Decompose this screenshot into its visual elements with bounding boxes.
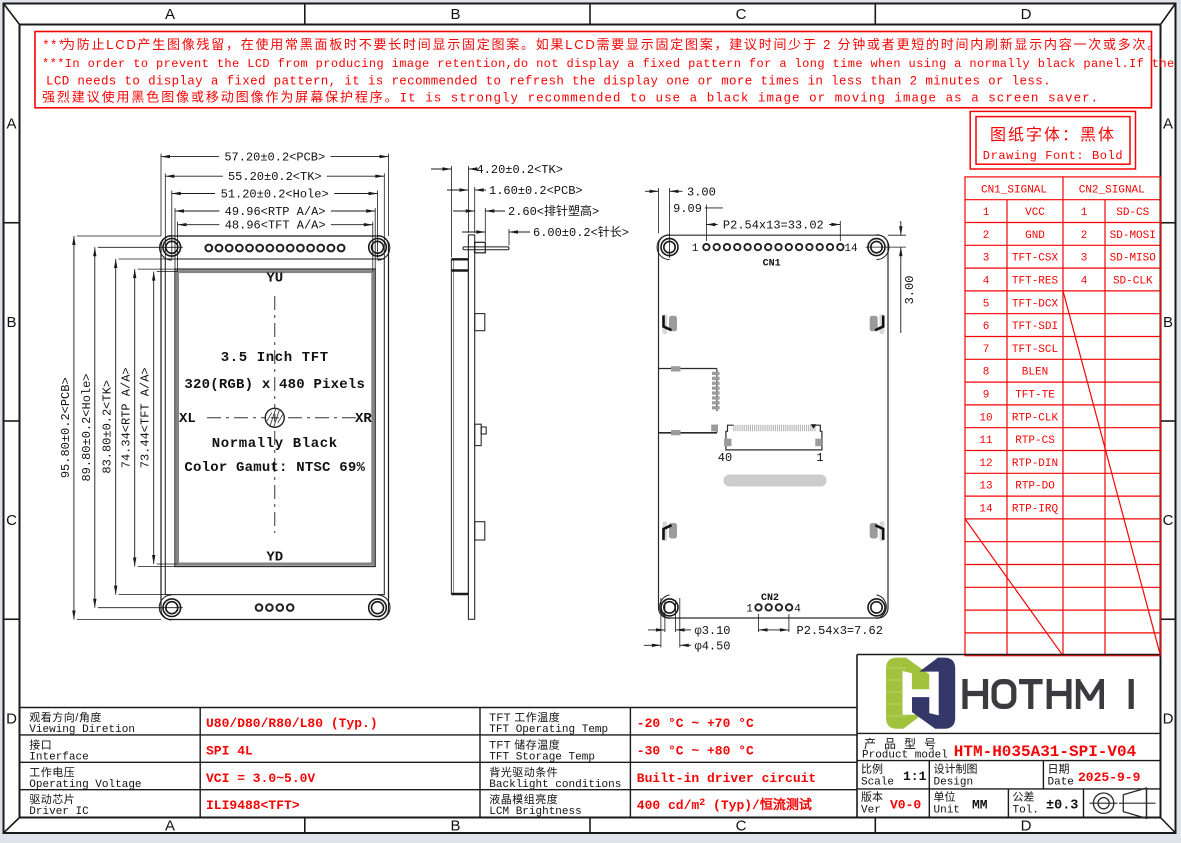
svg-text:Drawing Font: Bold: Drawing Font: Bold bbox=[983, 149, 1123, 163]
svg-text:3.5 Inch TFT: 3.5 Inch TFT bbox=[221, 350, 329, 366]
svg-text:TFT Operating Temp: TFT Operating Temp bbox=[489, 724, 608, 736]
svg-text:TFT-RES: TFT-RES bbox=[1012, 276, 1059, 288]
svg-text:B: B bbox=[450, 6, 460, 23]
svg-text:89.80±0.2<Hole>: 89.80±0.2<Hole> bbox=[80, 373, 94, 481]
svg-text:3: 3 bbox=[983, 253, 990, 265]
svg-text:A: A bbox=[165, 818, 175, 835]
svg-text:400 cd/m2 (Typ)/恒流测试: 400 cd/m2 (Typ)/恒流测试 bbox=[637, 797, 812, 813]
svg-text:Viewing Diretion: Viewing Diretion bbox=[29, 724, 135, 736]
svg-text:日期: 日期 bbox=[1048, 763, 1070, 776]
svg-text:MM: MM bbox=[972, 798, 988, 813]
svg-text:TFT-DCX: TFT-DCX bbox=[1012, 298, 1059, 310]
svg-text:3: 3 bbox=[1081, 253, 1088, 265]
svg-text:14: 14 bbox=[844, 243, 858, 255]
svg-text:B: B bbox=[1163, 314, 1173, 331]
svg-text:Normally Black: Normally Black bbox=[212, 436, 338, 452]
svg-text:73.44<TFT A/A>: 73.44<TFT A/A> bbox=[139, 367, 153, 468]
svg-text:比例: 比例 bbox=[861, 762, 883, 776]
svg-text:10: 10 bbox=[979, 412, 992, 424]
svg-text:11: 11 bbox=[979, 435, 993, 447]
svg-text:U80/D80/R80/L80 (Typ.): U80/D80/R80/L80 (Typ.) bbox=[206, 716, 378, 731]
svg-text:-30 °C ~ +80 °C: -30 °C ~ +80 °C bbox=[637, 743, 754, 758]
svg-text:A: A bbox=[165, 6, 175, 23]
svg-text:CN1_SIGNAL: CN1_SIGNAL bbox=[981, 184, 1047, 196]
svg-text:1: 1 bbox=[1081, 207, 1088, 219]
svg-text:Unit: Unit bbox=[934, 805, 960, 817]
svg-text:C: C bbox=[1163, 512, 1174, 529]
svg-text:TFT Storage Temp: TFT Storage Temp bbox=[489, 751, 595, 763]
svg-text:3.00: 3.00 bbox=[903, 276, 917, 305]
svg-text:2.60<排针塑高>: 2.60<排针塑高> bbox=[508, 203, 599, 219]
svg-text:Ver: Ver bbox=[861, 805, 881, 817]
svg-text:55.20±0.2<TK>: 55.20±0.2<TK> bbox=[228, 170, 322, 184]
svg-text:D: D bbox=[6, 710, 17, 727]
svg-text:RTP-CLK: RTP-CLK bbox=[1012, 412, 1059, 424]
svg-text:83.80±0.2<TK>: 83.80±0.2<TK> bbox=[101, 380, 115, 474]
svg-text:VCI = 3.0~5.0V: VCI = 3.0~5.0V bbox=[206, 771, 315, 786]
svg-text:LCM Brightness: LCM Brightness bbox=[489, 806, 581, 818]
svg-text:BLEN: BLEN bbox=[1022, 367, 1048, 379]
svg-text:5: 5 bbox=[983, 298, 990, 310]
svg-text:SPI 4L: SPI 4L bbox=[206, 743, 253, 758]
svg-text:设计制图: 设计制图 bbox=[934, 763, 978, 776]
svg-text:XR: XR bbox=[355, 411, 372, 427]
svg-text:C: C bbox=[736, 6, 747, 23]
svg-text:D: D bbox=[1163, 710, 1174, 727]
svg-text:CN2_SIGNAL: CN2_SIGNAL bbox=[1079, 184, 1145, 196]
svg-text:SD-MOSI: SD-MOSI bbox=[1110, 230, 1156, 242]
svg-text:2025-9-9: 2025-9-9 bbox=[1078, 770, 1141, 785]
svg-text:320(RGB) x 480 Pixels: 320(RGB) x 480 Pixels bbox=[184, 377, 365, 393]
svg-text:6.00±0.2<针长>: 6.00±0.2<针长> bbox=[533, 224, 629, 240]
svg-text:YU: YU bbox=[266, 271, 283, 287]
svg-text:1: 1 bbox=[983, 207, 990, 219]
svg-text:Design: Design bbox=[934, 777, 974, 789]
svg-text:3.00: 3.00 bbox=[687, 185, 716, 199]
svg-text:Driver IC: Driver IC bbox=[29, 806, 89, 818]
svg-text:LCD needs to display a fixed p: LCD needs to display a fixed pattern, it… bbox=[46, 75, 1051, 89]
svg-text:D: D bbox=[1021, 818, 1032, 835]
svg-text:***In order to prevent the LCD: ***In order to prevent the LCD from prod… bbox=[42, 57, 1175, 71]
svg-text:Backlight conditions: Backlight conditions bbox=[489, 779, 621, 791]
svg-text:4: 4 bbox=[1081, 276, 1088, 288]
svg-text:φ3.10: φ3.10 bbox=[695, 624, 731, 638]
svg-text:57.20±0.2<PCB>: 57.20±0.2<PCB> bbox=[224, 151, 325, 165]
svg-text:1: 1 bbox=[692, 243, 699, 255]
svg-text:Scale: Scale bbox=[861, 777, 894, 789]
svg-text:版本: 版本 bbox=[861, 790, 883, 804]
svg-text:B: B bbox=[450, 818, 460, 835]
svg-text:单位: 单位 bbox=[934, 790, 956, 804]
svg-text:接口: 接口 bbox=[29, 738, 52, 751]
svg-text:公差: 公差 bbox=[1013, 790, 1035, 804]
svg-text:Date: Date bbox=[1048, 777, 1074, 789]
svg-text:强烈建议使用黑色图像或移动图像作为屏幕保护程序。It is: 强烈建议使用黑色图像或移动图像作为屏幕保护程序。It is strongly r… bbox=[42, 90, 1099, 106]
svg-text:Built-in driver circuit: Built-in driver circuit bbox=[637, 771, 816, 786]
svg-text:XL: XL bbox=[179, 411, 196, 427]
svg-text:GND: GND bbox=[1025, 230, 1045, 242]
svg-text:1:1: 1:1 bbox=[903, 769, 927, 784]
svg-text:TFT 储存温度: TFT 储存温度 bbox=[489, 737, 560, 751]
svg-text:1: 1 bbox=[746, 603, 753, 615]
svg-text:±0.3: ±0.3 bbox=[1046, 799, 1078, 814]
svg-text:TFT-SDI: TFT-SDI bbox=[1012, 321, 1058, 333]
svg-text:RTP-IRQ: RTP-IRQ bbox=[1012, 504, 1059, 516]
svg-text:A: A bbox=[6, 116, 16, 133]
svg-text:4.20±0.2<TK>: 4.20±0.2<TK> bbox=[477, 163, 563, 177]
svg-text:CN1: CN1 bbox=[763, 259, 781, 270]
svg-text:C: C bbox=[736, 818, 747, 835]
svg-text:TFT-SCL: TFT-SCL bbox=[1012, 344, 1058, 356]
svg-text:51.20±0.2<Hole>: 51.20±0.2<Hole> bbox=[221, 188, 329, 202]
svg-text:Product model: Product model bbox=[862, 750, 948, 762]
svg-text:Interface: Interface bbox=[29, 751, 88, 763]
svg-text:ILI9488<TFT>: ILI9488<TFT> bbox=[206, 798, 300, 813]
svg-text:9.09: 9.09 bbox=[673, 202, 702, 216]
svg-text:V0-0: V0-0 bbox=[890, 798, 921, 813]
svg-text:2: 2 bbox=[1081, 230, 1088, 242]
svg-text:4: 4 bbox=[983, 276, 990, 288]
svg-text:Operating Voltage: Operating Voltage bbox=[29, 779, 141, 791]
svg-text:背光驱动条件: 背光驱动条件 bbox=[489, 765, 558, 779]
svg-text:SD-CLK: SD-CLK bbox=[1113, 276, 1153, 288]
svg-text:95.80±0.2<PCB>: 95.80±0.2<PCB> bbox=[59, 377, 73, 478]
svg-text:SD-MISO: SD-MISO bbox=[1110, 253, 1157, 265]
svg-text:工作电压: 工作电压 bbox=[29, 766, 75, 779]
svg-text:RTP-CS: RTP-CS bbox=[1015, 435, 1055, 447]
svg-text:TFT 工作温度: TFT 工作温度 bbox=[489, 710, 560, 724]
svg-text:CN2: CN2 bbox=[761, 593, 779, 604]
svg-text:为防止LCD产生图像残留，在使用常黑面板时不要长时间显示固定: 为防止LCD产生图像残留，在使用常黑面板时不要长时间显示固定图案。如果LCD需要… bbox=[62, 37, 1162, 52]
svg-text:Color Gamut: NTSC 69%: Color Gamut: NTSC 69% bbox=[184, 460, 365, 476]
svg-text:TFT-TE: TFT-TE bbox=[1015, 390, 1055, 402]
svg-text:B: B bbox=[6, 314, 16, 331]
svg-text:A: A bbox=[1163, 116, 1173, 133]
svg-text:13: 13 bbox=[979, 481, 992, 493]
svg-text:Tol.: Tol. bbox=[1013, 805, 1039, 817]
svg-text:VCC: VCC bbox=[1025, 207, 1045, 219]
svg-text:观看方向/角度: 观看方向/角度 bbox=[29, 710, 102, 724]
svg-text:9: 9 bbox=[983, 390, 990, 402]
svg-text:RTP-DO: RTP-DO bbox=[1015, 481, 1055, 493]
svg-text:49.96<RTP A/A>: 49.96<RTP A/A> bbox=[225, 205, 326, 219]
svg-text:40: 40 bbox=[718, 451, 732, 465]
svg-text:1.60±0.2<PCB>: 1.60±0.2<PCB> bbox=[489, 184, 583, 198]
svg-text:14: 14 bbox=[979, 504, 993, 516]
svg-text:YD: YD bbox=[266, 550, 283, 566]
svg-text:φ4.50: φ4.50 bbox=[695, 639, 731, 653]
svg-text:4: 4 bbox=[794, 603, 801, 615]
svg-text:液晶模组亮度: 液晶模组亮度 bbox=[489, 792, 558, 806]
svg-text:C: C bbox=[6, 512, 17, 529]
svg-text:12: 12 bbox=[979, 458, 992, 470]
svg-text:1: 1 bbox=[816, 451, 823, 465]
svg-text:-20 °C ~ +70 °C: -20 °C ~ +70 °C bbox=[637, 716, 754, 731]
svg-text:48.96<TFT A/A>: 48.96<TFT A/A> bbox=[225, 219, 326, 233]
svg-text:P2.54x13=33.02: P2.54x13=33.02 bbox=[723, 219, 824, 233]
svg-text:图纸字体：黑体: 图纸字体：黑体 bbox=[990, 126, 1116, 144]
svg-text:SD-CS: SD-CS bbox=[1116, 207, 1149, 219]
svg-text:6: 6 bbox=[983, 321, 990, 333]
svg-text:RTP-DIN: RTP-DIN bbox=[1012, 458, 1058, 470]
svg-text:HTM-H035A31-SPI-V04: HTM-H035A31-SPI-V04 bbox=[954, 743, 1137, 761]
svg-text:驱动芯片: 驱动芯片 bbox=[29, 792, 75, 806]
svg-text:74.34<RTP A/A>: 74.34<RTP A/A> bbox=[120, 367, 134, 468]
svg-text:8: 8 bbox=[983, 367, 990, 379]
svg-text:D: D bbox=[1021, 6, 1032, 23]
svg-text:TFT-CSX: TFT-CSX bbox=[1012, 253, 1059, 265]
svg-text:2: 2 bbox=[983, 230, 990, 242]
svg-text:7: 7 bbox=[983, 344, 990, 356]
svg-text:P2.54x3=7.62: P2.54x3=7.62 bbox=[797, 624, 883, 638]
